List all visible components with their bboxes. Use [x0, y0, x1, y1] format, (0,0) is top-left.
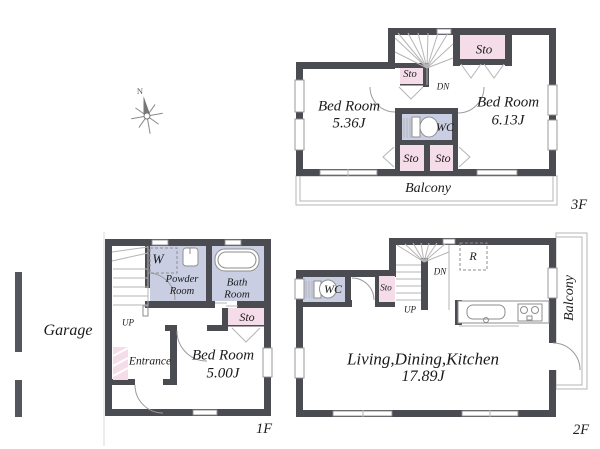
f1-garage-label: Garage [44, 323, 93, 339]
floor-plan-canvas: Bed Room 5.36J Bed Room 6.13J Sto Sto WC… [0, 0, 600, 449]
f1-floor-label: 1F [256, 422, 272, 437]
f2-fridge-label: R [469, 250, 476, 262]
f2-balcony-label: Balcony [563, 275, 577, 321]
f1-entrance-step [113, 347, 128, 380]
f3-floor-label: 3F [571, 198, 587, 213]
f3-bedroom-b-size: 6.13J [492, 114, 525, 129]
f3-stairs-dn-label: DN [437, 83, 450, 92]
f3-wc-label: WC [436, 121, 454, 133]
f3-balcony-label: Balcony [405, 182, 451, 196]
f1-bathtub-icon [215, 249, 259, 271]
f1-closet-marks [232, 328, 260, 342]
f1-stairs-up-label: UP [122, 319, 134, 328]
f3-bedroom-b-name: Bed Room [477, 96, 539, 111]
f1-powder-room-label-2: Room [170, 287, 195, 298]
f3-sto-right-label: Sto [476, 43, 493, 56]
f2-floor-label: 2F [573, 423, 589, 438]
f1-stairs [112, 246, 148, 316]
plan-graphics [0, 0, 600, 449]
f1-garage-walls [15, 232, 104, 446]
f1-sink-icon [183, 248, 198, 266]
f1-bedroom-name: Bed Room [192, 349, 254, 364]
f3-bedroom-a-size: 5.36J [333, 117, 366, 132]
f2-stairs-up-label: UP [404, 306, 416, 315]
f2-wc-label: WC [324, 283, 342, 295]
f1-sto-label: Sto [239, 311, 254, 323]
compass-north-label: N [137, 87, 143, 96]
f3-bedroom-a-name: Bed Room [318, 100, 380, 115]
f1-entrance-label: Entrance [129, 356, 171, 368]
f1-bath-room-label-2: Room [224, 290, 250, 301]
f3-sto-c1-label: Sto [403, 152, 418, 164]
f1-bedroom-size: 5.00J [207, 367, 240, 382]
f2-walls [296, 238, 556, 417]
compass-rose-icon [128, 94, 166, 137]
f1-bath-room-label-1: Bath [227, 278, 248, 289]
f1-washer-label: W [152, 252, 163, 266]
f3-sto-stairs-label: Sto [403, 70, 416, 81]
f2-sto-label: Sto [380, 284, 392, 293]
f2-ldk-name: Living,Dining,Kitchen [347, 351, 499, 368]
f2-stairs-dn-label: DN [434, 268, 447, 277]
f1-powder-room-label-1: Powder [166, 275, 199, 286]
f2-ldk-size: 17.89J [401, 369, 444, 385]
f3-sto-c2-label: Sto [435, 152, 450, 164]
